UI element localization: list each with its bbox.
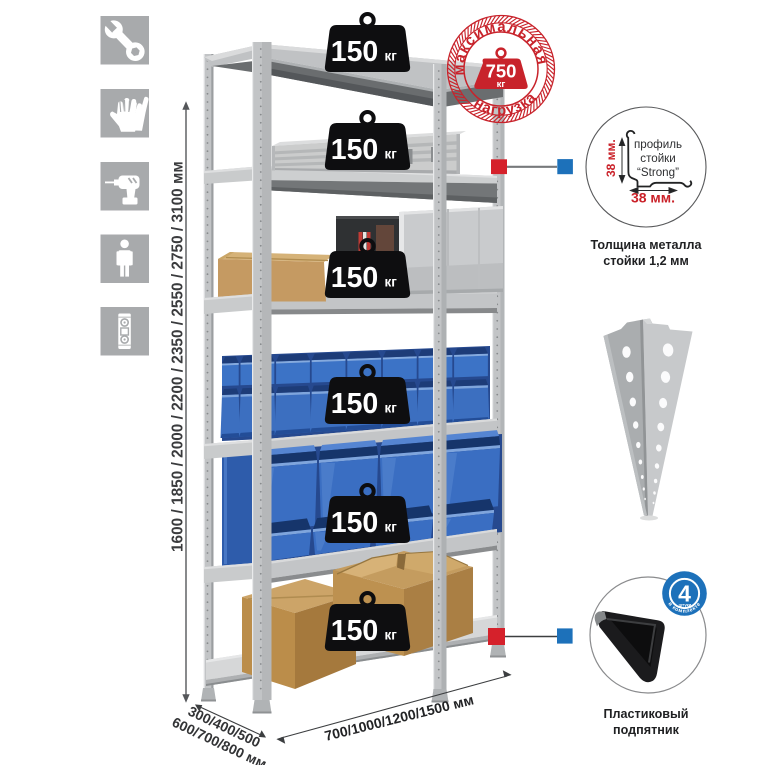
svg-text:кг: кг (497, 79, 506, 90)
svg-text:150: 150 (331, 36, 379, 68)
svg-text:38 мм.: 38 мм. (631, 190, 675, 206)
svg-text:“Strong”: “Strong” (637, 166, 679, 179)
svg-text:штуки: штуки (679, 603, 692, 608)
svg-text:подпятник: подпятник (613, 723, 680, 737)
svg-text:профиль: профиль (634, 138, 682, 151)
svg-text:150: 150 (331, 507, 379, 539)
svg-text:150: 150 (331, 615, 379, 647)
svg-text:кг: кг (385, 275, 398, 290)
svg-text:кг: кг (385, 49, 398, 64)
svg-text:150: 150 (331, 262, 379, 294)
svg-text:кг: кг (385, 147, 398, 162)
svg-text:38 мм.: 38 мм. (604, 139, 618, 177)
svg-text:Пластиковый: Пластиковый (603, 707, 688, 721)
svg-text:кг: кг (385, 628, 398, 643)
svg-text:стойки: стойки (640, 152, 675, 165)
svg-text:150: 150 (331, 134, 379, 166)
svg-text:Толщина металла: Толщина металла (590, 238, 702, 252)
svg-text:кг: кг (385, 401, 398, 416)
svg-text:стойки 1,2 мм: стойки 1,2 мм (603, 254, 689, 268)
svg-text:кг: кг (385, 520, 398, 535)
svg-text:150: 150 (331, 388, 379, 420)
svg-text:1600 / 1850 / 2000 / 2200 / 23: 1600 / 1850 / 2000 / 2200 / 2350 / 2550 … (170, 161, 187, 552)
